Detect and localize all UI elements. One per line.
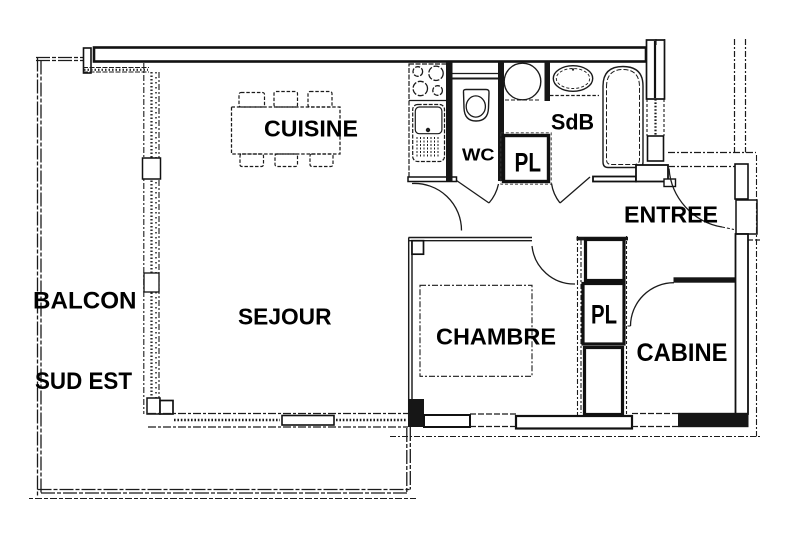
svg-text:PL: PL — [515, 148, 542, 178]
svg-text:SEJOUR: SEJOUR — [238, 304, 332, 330]
svg-text:CHAMBRE: CHAMBRE — [436, 324, 556, 350]
svg-text:CUISINE: CUISINE — [264, 116, 358, 142]
svg-text:CABINE: CABINE — [637, 339, 728, 367]
svg-text:BALCON: BALCON — [33, 288, 137, 315]
svg-text:SdB: SdB — [551, 110, 594, 135]
svg-text:ENTREE: ENTREE — [624, 202, 718, 228]
svg-text:PL: PL — [591, 300, 617, 330]
svg-text:WC: WC — [462, 144, 495, 164]
svg-text:SUD EST: SUD EST — [35, 368, 132, 395]
